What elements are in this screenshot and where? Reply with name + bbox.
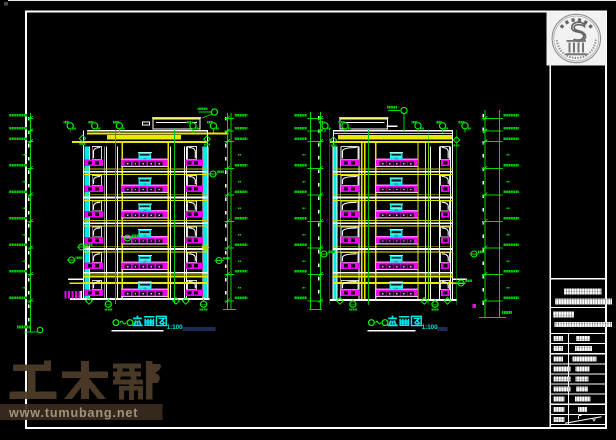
svg-text:1:100: 1:100 — [422, 324, 438, 331]
svg-text:1:100: 1:100 — [167, 324, 183, 331]
svg-text:www.tumubang.net: www.tumubang.net — [8, 406, 138, 420]
